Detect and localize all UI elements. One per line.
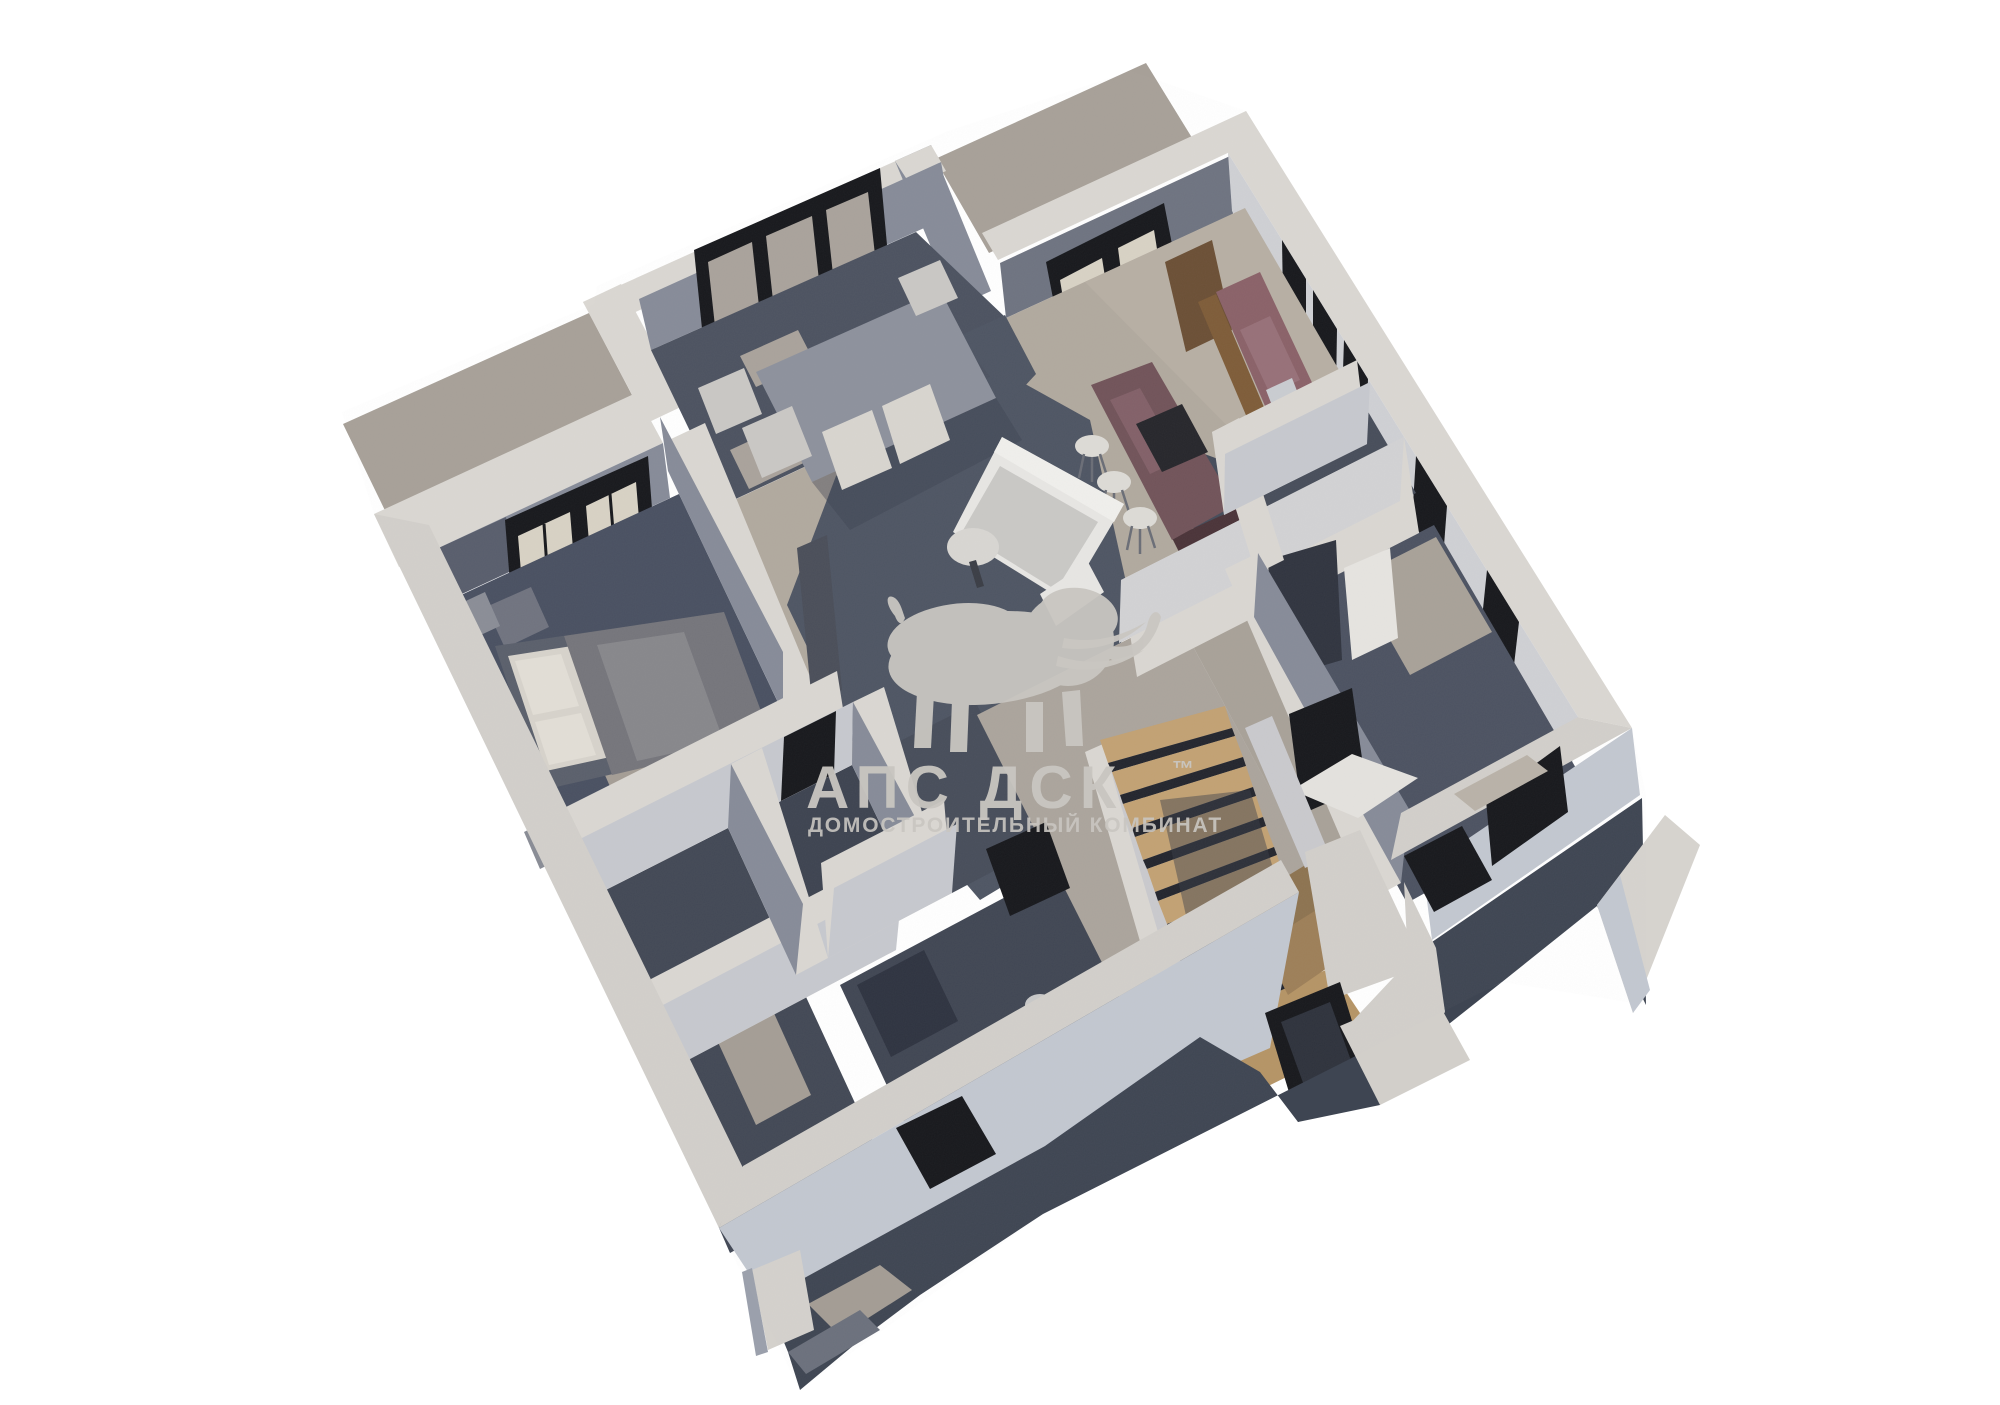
svg-text:™: ™ (1172, 756, 1194, 781)
svg-text:ДОМОСТРОИТЕЛЬНЫЙ КОМБИНАТ: ДОМОСТРОИТЕЛЬНЫЙ КОМБИНАТ (808, 813, 1223, 837)
svg-text:АПС ДСК: АПС ДСК (806, 754, 1123, 821)
